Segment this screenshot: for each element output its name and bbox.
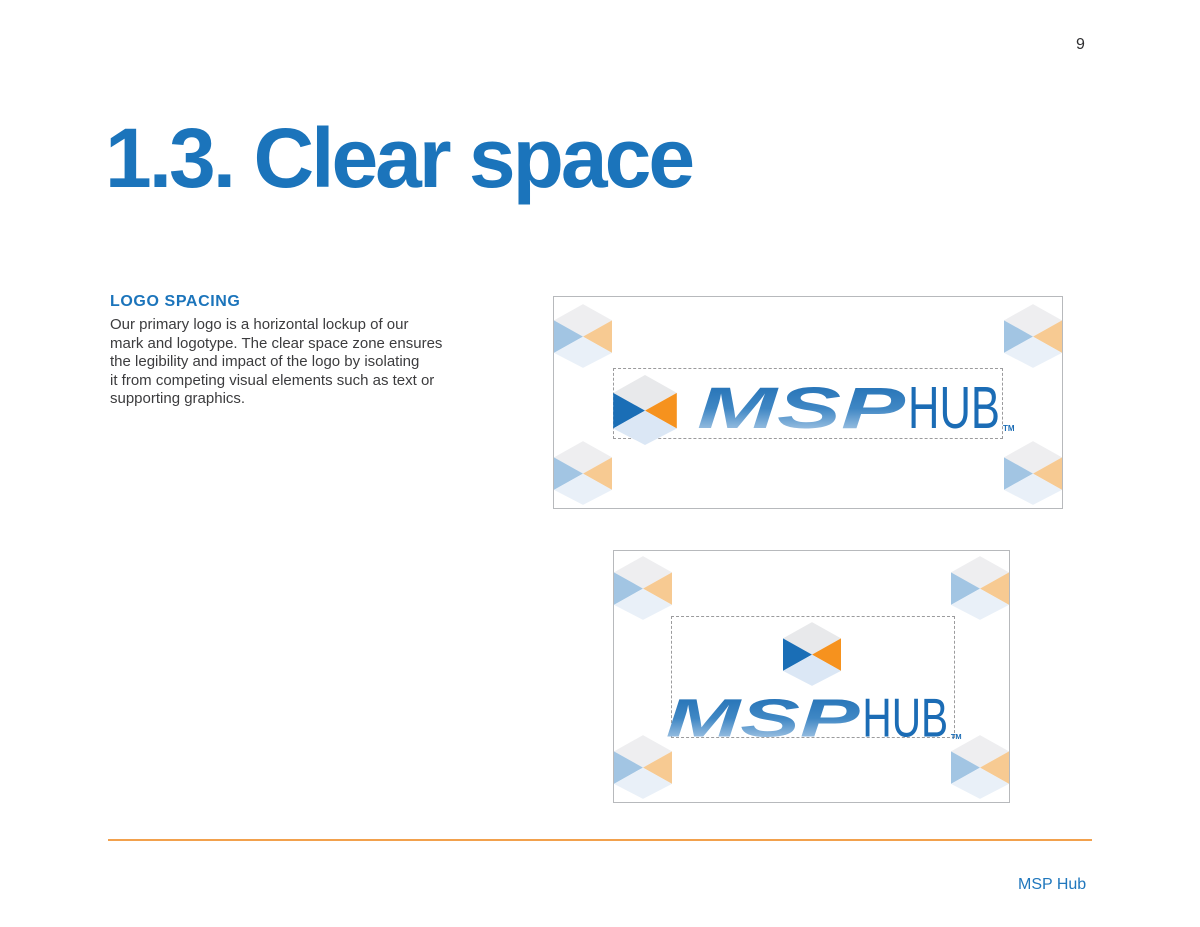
spacing-marker-hexagon-icon: [1004, 441, 1062, 505]
spacing-marker-hexagon-icon: [614, 556, 672, 620]
clear-space-diagram-horizontal: MSP HUB TM: [553, 296, 1063, 509]
wordmark-msp-text: MSP: [666, 688, 861, 748]
body-line: it from competing visual elements such a…: [110, 372, 442, 391]
body-line: Our primary logo is a horizontal lockup …: [110, 316, 442, 335]
msp-hub-wordmark: MSP HUB TM: [663, 696, 963, 743]
spacing-marker-hexagon-icon: [951, 556, 1009, 620]
body-line: mark and logotype. The clear space zone …: [110, 335, 442, 354]
msp-hub-wordmark: MSP HUB TM: [694, 385, 1016, 435]
body-line: supporting graphics.: [110, 390, 442, 409]
msp-hub-logo-mark-icon: [613, 375, 677, 445]
trademark-symbol: TM: [951, 732, 962, 741]
wordmark-msp-text: MSP: [697, 376, 906, 441]
spacing-marker-hexagon-icon: [554, 441, 612, 505]
section-body-text: Our primary logo is a horizontal lockup …: [110, 316, 442, 409]
clear-space-diagram-vertical: MSP HUB TM: [613, 550, 1010, 803]
footer-divider: [108, 839, 1092, 841]
spacing-marker-hexagon-icon: [951, 735, 1009, 799]
brand-guidelines-page: 9 1.3. Clear space LOGO SPACING Our prim…: [0, 0, 1200, 927]
spacing-marker-hexagon-icon: [554, 304, 612, 368]
page-title: 1.3. Clear space: [105, 116, 692, 200]
body-line: the legibility and impact of the logo by…: [110, 353, 442, 372]
wordmark-hub-text: HUB: [862, 686, 948, 748]
spacing-marker-hexagon-icon: [614, 735, 672, 799]
trademark-symbol: TM: [1003, 424, 1015, 433]
wordmark-hub-text: HUB: [908, 375, 1000, 441]
msp-hub-logo-mark-icon: [783, 622, 841, 686]
spacing-marker-hexagon-icon: [1004, 304, 1062, 368]
page-number: 9: [1076, 36, 1085, 54]
footer-brand-name: MSP Hub: [1018, 876, 1086, 894]
section-title: LOGO SPACING: [110, 293, 240, 311]
